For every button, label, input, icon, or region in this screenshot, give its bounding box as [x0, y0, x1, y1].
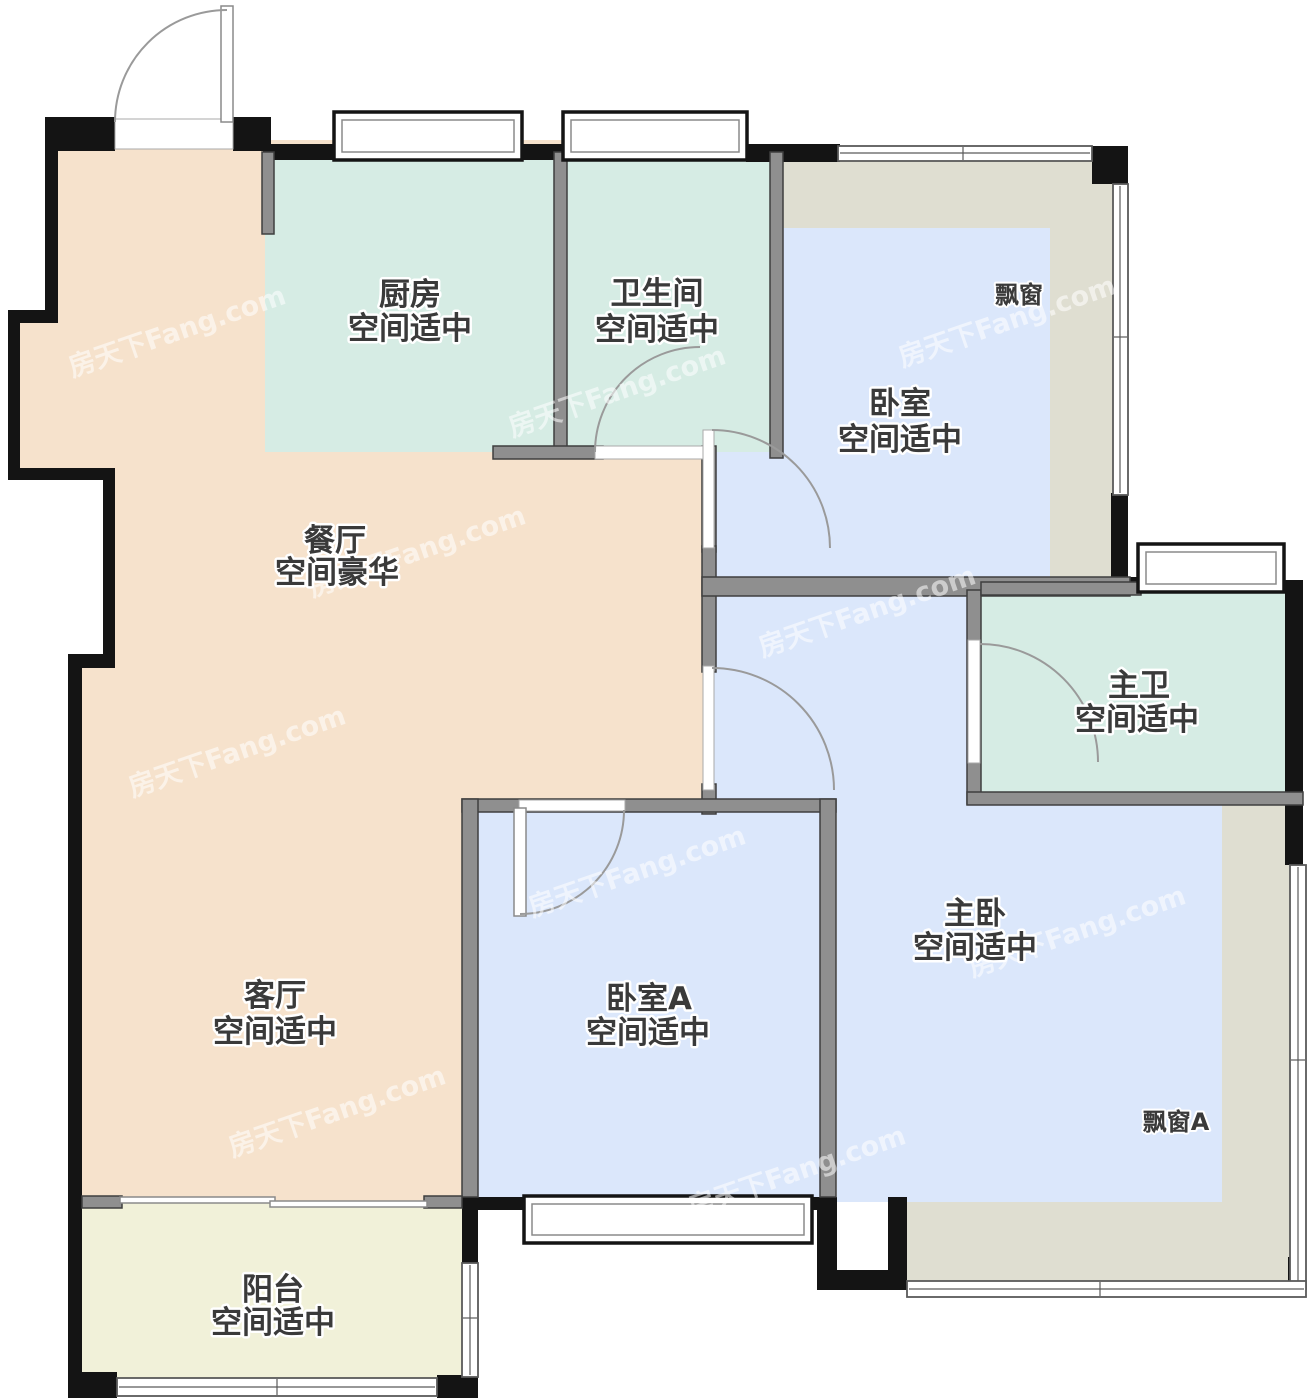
bedroom-door-opening [703, 430, 714, 548]
entry-door-leaf [221, 6, 233, 122]
bathroom-door-opening [595, 446, 706, 459]
bathroom-bottom-wall [493, 446, 603, 459]
balcony-sliding-door [270, 1201, 427, 1207]
bathroom-right-wall [770, 152, 783, 458]
bedroom-a-desc: 空间适中 [586, 1015, 710, 1051]
master-bath-label: 主卫 [1108, 668, 1170, 704]
bedroom-a-right-wall [820, 799, 836, 1197]
master-bath-door-opening [968, 640, 980, 763]
exterior-wall-left [45, 117, 58, 323]
exterior-wall-corner [437, 1375, 478, 1398]
entry-door-opening [115, 119, 233, 149]
bathroom-window [563, 112, 747, 160]
bedroom-a-label: 卧室A [606, 981, 692, 1017]
bedroom-a-left-wall [462, 799, 478, 1197]
master-bath-top-wall [981, 582, 1141, 595]
master-bedroom-desc: 空间适中 [913, 930, 1037, 966]
living-label: 客厅 [244, 978, 306, 1014]
floorplan-canvas: 房天下Fang.com 房天下Fang.com 房天下Fang.com 房天下F… [0, 0, 1309, 1400]
kitchen-label: 厨房 [379, 277, 441, 313]
exterior-wall-corner [462, 1197, 478, 1263]
bay-window-a-label: 飘窗A [1143, 1108, 1210, 1136]
bathroom-desc: 空间适中 [595, 312, 719, 348]
exterior-wall-left [103, 468, 115, 668]
bedroom-a-door-opening [519, 800, 625, 811]
balcony-sliding-door [120, 1197, 275, 1203]
balcony-divider-wall [82, 1196, 122, 1208]
exterior-wall-corner [1092, 146, 1128, 184]
exterior-wall-left [68, 654, 82, 1378]
exterior-wall-top [270, 144, 336, 160]
bedroom-label: 卧室 [869, 386, 931, 422]
kitchen-desc: 空间适中 [348, 311, 472, 347]
master-bath-bottom-wall [967, 792, 1303, 805]
exterior-wall-step [817, 1197, 837, 1290]
bedroom-a-door-leaf [514, 808, 526, 916]
bathroom-label: 卫生间 [611, 276, 704, 312]
exterior-wall-left [8, 310, 20, 480]
floorplan-svg: 房天下Fang.com 房天下Fang.com 房天下Fang.com 房天下F… [0, 0, 1309, 1400]
hall-vertical-wall [702, 546, 716, 672]
master-bath-desc: 空间适中 [1075, 702, 1199, 738]
bedroom-a-window [524, 1196, 812, 1243]
entry-door-arc [115, 10, 227, 122]
kitchen-window [334, 112, 522, 160]
kitchen-wall-stub [262, 152, 274, 234]
living-desc: 空间适中 [213, 1014, 337, 1050]
master-bedroom-label: 主卧 [944, 896, 1006, 932]
bedroom-desc: 空间适中 [838, 422, 962, 458]
balcony-divider-wall [424, 1196, 462, 1208]
bay-window-label: 飘窗 [995, 281, 1043, 309]
master-bath-window [1138, 544, 1284, 592]
exterior-wall-step [888, 1197, 907, 1287]
dining-desc: 空间豪华 [275, 555, 399, 591]
master-bedroom-door-opening [703, 666, 714, 790]
exterior-wall-right [1285, 580, 1303, 865]
balcony-label: 阳台 [242, 1272, 304, 1308]
dining-label: 餐厅 [304, 523, 366, 559]
exterior-wall-left [8, 468, 115, 480]
exterior-wall-top [746, 144, 840, 162]
balcony-desc: 空间适中 [211, 1305, 335, 1341]
